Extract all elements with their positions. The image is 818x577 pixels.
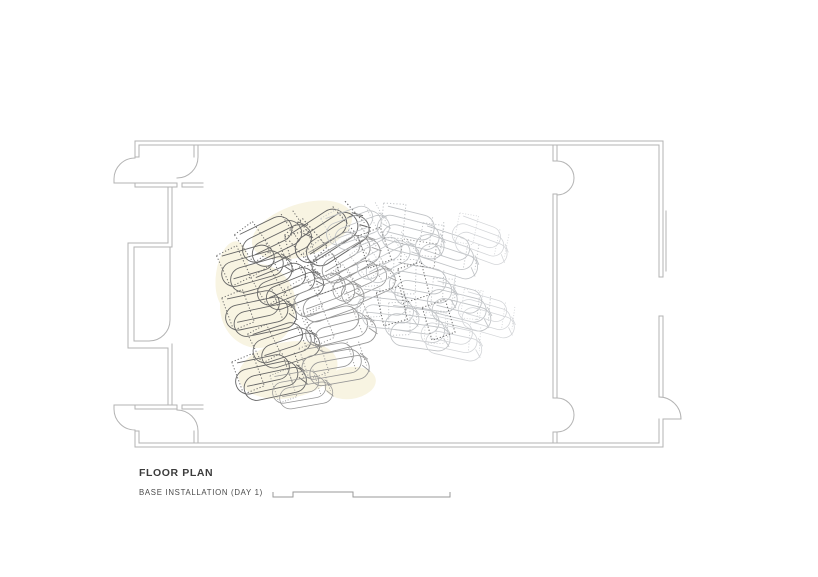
wall-right-corner (659, 419, 663, 447)
loop-chair (454, 286, 522, 341)
vestibule-top-doors (114, 157, 198, 183)
double-door-bottom (557, 398, 574, 432)
wall-top (135, 141, 663, 145)
vestibule-top-walls (135, 141, 203, 187)
floor-plan-page: FLOOR PLAN BASE INSTALLATION (DAY 1) (0, 0, 818, 577)
floor-plan-canvas (0, 0, 818, 577)
drawing-title: FLOOR PLAN (139, 467, 213, 479)
wall-interior (553, 145, 557, 443)
wall-right-lower (659, 316, 663, 397)
door-bottom-right (659, 397, 681, 419)
drawing-subtitle: BASE INSTALLATION (DAY 1) (139, 488, 263, 497)
scale-bar (273, 492, 450, 497)
door-alcove (149, 320, 170, 341)
loop-chair (347, 223, 422, 290)
wall-right-upper (659, 141, 663, 277)
wall-bottom (135, 443, 663, 447)
double-door-top (557, 161, 574, 195)
alcove-left (128, 243, 172, 348)
vestibule-bottom-walls (135, 405, 203, 447)
loop-chair (423, 274, 498, 333)
highlight-blob (245, 189, 360, 271)
loop-chair (447, 210, 517, 268)
loop-chair (324, 247, 399, 311)
